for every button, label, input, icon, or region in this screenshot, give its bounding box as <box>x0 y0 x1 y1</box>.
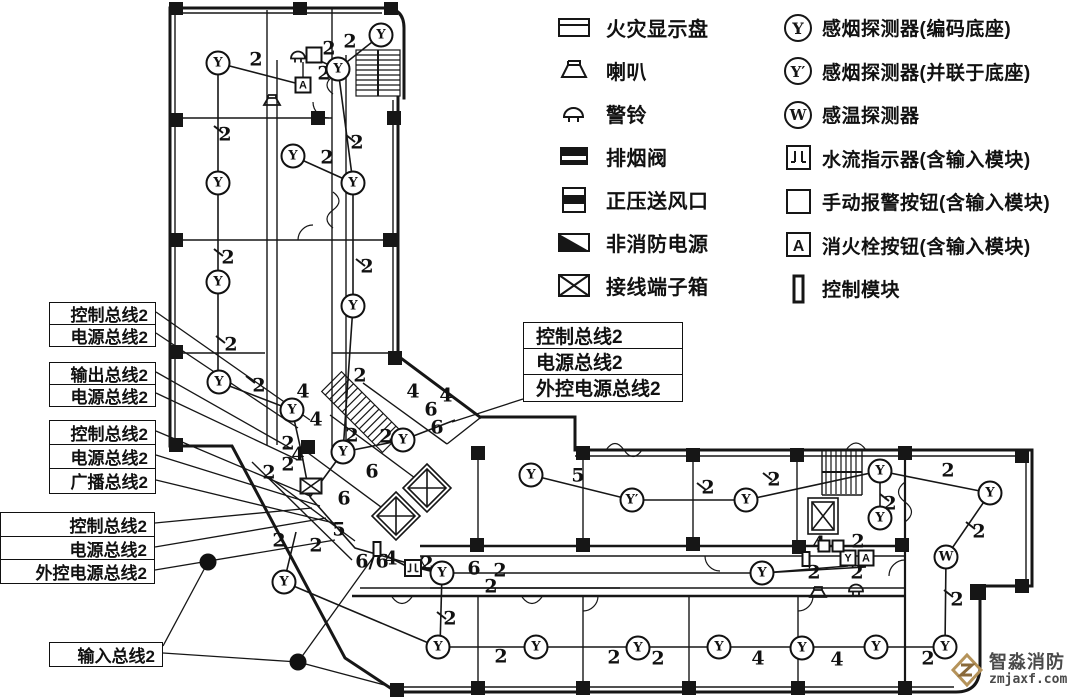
legend-row-smoke-detector-parallel: Y′感烟探测器(并联于底座) <box>782 50 1050 94</box>
fire-display-panel-icon <box>556 14 606 42</box>
wire-count: 2 <box>353 367 366 386</box>
wire-count: 4 <box>406 383 419 402</box>
smoke-exhaust-valve-icon <box>556 143 606 171</box>
wire-count: 2 <box>484 578 497 597</box>
smoke-detector: Y <box>331 440 356 465</box>
legend-label: 喇叭 <box>606 56 647 85</box>
hydrant-button: A <box>858 550 875 567</box>
smoke-detector: Y <box>430 561 455 586</box>
wire-count: 2 <box>767 471 780 490</box>
smoke-detector: Y <box>868 459 893 484</box>
wire-count: 4 <box>830 651 843 670</box>
legend-row-water-flow-indicator: 水流指示器(含输入模块) <box>782 137 1050 181</box>
wire-count: 2 <box>972 523 985 542</box>
wire-count: 6 <box>430 419 443 438</box>
wire-count: 2 <box>950 591 963 610</box>
svg-text:Y′: Y′ <box>790 63 806 81</box>
junction-dot <box>200 554 217 571</box>
svg-text:W: W <box>789 106 808 124</box>
junction-dot <box>290 654 307 671</box>
smoke-detector: Y <box>206 270 231 295</box>
heat-detector-icon: W <box>782 99 822 131</box>
watermark: 智淼消防 zmjaxf.com <box>950 652 1067 688</box>
smoke-detector-icon: Y <box>782 12 822 44</box>
smoke-detector-parallel: Y′ <box>620 488 645 513</box>
legend-row-terminal-box: 接线端子箱 <box>556 264 709 307</box>
wire-count: 2 <box>343 33 356 52</box>
smoke-detector: Y <box>280 398 305 423</box>
smoke-detector: Y <box>978 481 1003 506</box>
alarm-bell-icon <box>289 50 307 65</box>
smoke-detector: Y <box>281 144 306 169</box>
bus-label-g2-row2: 电源总线2 <box>49 384 156 407</box>
wire-count: 2 <box>309 537 322 556</box>
legend-left-column: 火灾显示盘喇叭警铃排烟阀正压送风口非消防电源接线端子箱 <box>556 6 709 307</box>
legend-row-speaker: 喇叭 <box>556 49 709 92</box>
legend-label: 手动报警按钮(含输入模块) <box>822 188 1050 215</box>
legend-label: 正压送风口 <box>606 185 709 214</box>
smoke-detector: Y <box>426 635 451 660</box>
alarm-bell-icon <box>847 583 865 598</box>
control-module-icon <box>782 274 822 304</box>
water-flow-indicator <box>404 559 423 578</box>
manual-call-point <box>306 47 323 64</box>
speaker-icon <box>556 57 606 85</box>
hydrant-button-icon: A <box>782 230 822 260</box>
bus-label-g3-row3: 广播总线2 <box>49 468 156 494</box>
legend-row-heat-detector: W感温探测器 <box>782 93 1050 137</box>
smoke-detector: Y <box>272 570 297 595</box>
smoke-detector: Y <box>206 171 231 196</box>
legend-row-fire-display-panel: 火灾显示盘 <box>556 6 709 49</box>
legend-row-non-fire-power: 非消防电源 <box>556 221 709 264</box>
legend-label: 感温探测器 <box>822 101 920 128</box>
legend-row-smoke-exhaust-valve: 排烟阀 <box>556 135 709 178</box>
bus-label-mid-row1: 控制总线2 <box>523 322 683 350</box>
wire-count: 2 <box>651 650 664 669</box>
legend-label: 消火栓按钮(含输入模块) <box>822 232 1031 259</box>
legend-label: 警铃 <box>606 99 647 128</box>
wire-count: 6 <box>365 463 378 482</box>
bus-label-g3-row1: 控制总线2 <box>49 420 156 446</box>
legend-label: 控制模块 <box>822 275 900 302</box>
input-module-box <box>818 540 831 553</box>
legend-label: 水流指示器(含输入模块) <box>822 145 1031 172</box>
wire-count: 2 <box>701 479 714 498</box>
bus-label-mid-row3: 外控电源总线2 <box>523 374 683 402</box>
water-flow-indicator-icon <box>782 143 822 173</box>
smoke-detector: Y <box>790 636 815 661</box>
legend-row-control-module: 控制模块 <box>782 267 1050 311</box>
svg-text:Y: Y <box>791 19 804 38</box>
wire-count: 2 <box>921 650 934 669</box>
legend-row-manual-call-point: 手动报警按钮(含输入模块) <box>782 180 1050 224</box>
smoke-detector: Y <box>868 506 893 531</box>
wire-count: 2 <box>218 126 231 145</box>
wire-count: 2 <box>224 336 237 355</box>
wire-count: 2 <box>607 649 620 668</box>
svg-text:A: A <box>793 238 805 255</box>
bus-label-g4-row2: 电源总线2 <box>0 536 155 561</box>
alarm-bell-icon <box>556 100 606 128</box>
terminal-box <box>299 477 323 495</box>
bus-label-mid-row2: 电源总线2 <box>523 348 683 376</box>
legend-label: 感烟探测器(并联于底座) <box>822 58 1031 85</box>
speaker-icon <box>262 93 282 107</box>
legend-row-hydrant-button: A消火栓按钮(含输入模块) <box>782 224 1050 268</box>
heat-detector: W <box>934 545 959 570</box>
input-module-box <box>832 540 845 553</box>
wire-count: 4 <box>309 411 322 430</box>
terminal-box-icon <box>556 272 606 300</box>
smoke-detector: Y <box>524 635 549 660</box>
wire-count: 2 <box>249 51 262 70</box>
wire-count: 2 <box>272 532 285 551</box>
wire-count: 4 <box>751 650 764 669</box>
wire-count: 2 <box>221 249 234 268</box>
wire-count: 4 <box>384 550 397 569</box>
wire-count: 6 <box>337 490 350 509</box>
wire-count: 6 <box>467 560 480 579</box>
legend-row-smoke-detector: Y感烟探测器(编码底座) <box>782 6 1050 50</box>
control-module <box>802 551 811 567</box>
smoke-detector: Y <box>707 635 732 660</box>
smoke-detector: Y <box>626 636 651 661</box>
wire-count: 5 <box>332 521 345 540</box>
legend-label: 非消防电源 <box>606 228 709 257</box>
hydrant-button: A <box>295 77 312 94</box>
speaker-icon <box>808 585 828 599</box>
legend-label: 接线端子箱 <box>606 271 709 300</box>
watermark-logo <box>950 652 984 688</box>
bus-label-g1-row2: 电源总线2 <box>49 324 156 347</box>
smoke-detector: Y <box>206 51 231 76</box>
watermark-url: zmjaxf.com <box>989 672 1067 687</box>
bus-label-g4-row3: 外控电源总线2 <box>0 559 155 584</box>
smoke-detector: Y <box>341 294 366 319</box>
legend-right-column: Y感烟探测器(编码底座)Y′感烟探测器(并联于底座)W感温探测器水流指示器(含输… <box>782 6 1050 311</box>
smoke-detector: Y <box>369 23 394 48</box>
smoke-detector: Y <box>519 463 544 488</box>
smoke-detector: Y <box>341 171 366 196</box>
bus-label-g5-row1: 输入总线2 <box>49 642 163 667</box>
legend-label: 感烟探测器(编码底座) <box>822 14 1011 41</box>
wire-count: 2 <box>252 377 265 396</box>
legend-label: 火灾显示盘 <box>606 13 709 42</box>
non-fire-power-icon <box>556 229 606 257</box>
legend-row-alarm-bell: 警铃 <box>556 92 709 135</box>
smoke-detector: Y <box>864 635 889 660</box>
smoke-detector: Y <box>326 57 351 82</box>
manual-call-point-icon <box>782 187 822 217</box>
wire-count: 4 <box>439 387 452 406</box>
control-module <box>373 541 382 557</box>
wire-count: 2 <box>281 456 294 475</box>
pressurized-air-outlet-icon <box>556 186 606 214</box>
legend-label: 排烟阀 <box>606 142 668 171</box>
wire-count: 2 <box>443 610 456 629</box>
fire-alarm-floorplan: YYYYYYYYYYYYYYY′YYYYYYYYYYYYYWAAY2222222… <box>0 0 1080 700</box>
wire-count: 2 <box>322 40 335 59</box>
smoke-detector: Y <box>207 370 232 395</box>
legend-row-pressurized-air-outlet: 正压送风口 <box>556 178 709 221</box>
smoke-detector: Y <box>391 428 416 453</box>
wire-count: 2 <box>320 149 333 168</box>
watermark-brand: 智淼消防 <box>989 653 1067 672</box>
wire-count: 2 <box>360 258 373 277</box>
wire-count: 5 <box>571 467 584 486</box>
bus-label-g3-row2: 电源总线2 <box>49 444 156 470</box>
smoke-detector: Y <box>750 561 775 586</box>
wire-count: 2 <box>494 648 507 667</box>
wire-count: 2 <box>262 464 275 483</box>
smoke-detector: Y <box>734 488 759 513</box>
wire-count: 2 <box>350 134 363 153</box>
bus-label-g4-row1: 控制总线2 <box>0 512 155 537</box>
wire-count: 2 <box>941 462 954 481</box>
smoke-detector-parallel-icon: Y′ <box>782 55 822 87</box>
